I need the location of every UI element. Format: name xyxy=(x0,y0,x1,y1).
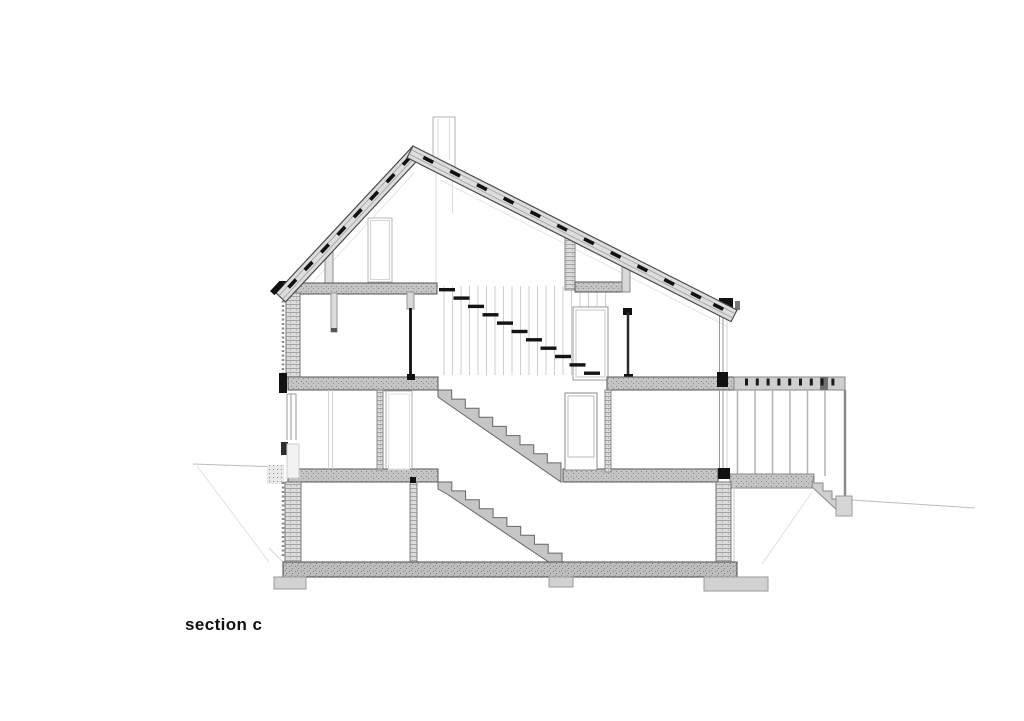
ground-floor-slab xyxy=(288,469,718,482)
first-floor-slab xyxy=(288,377,734,390)
attic-door xyxy=(573,307,608,380)
grade-line-right xyxy=(762,492,975,564)
wall-stub xyxy=(331,293,337,332)
interior-wall-ground-right xyxy=(565,390,611,472)
enclosure-wall-left xyxy=(565,235,575,290)
soil-hatch xyxy=(267,465,284,484)
terrace-beam-ticks xyxy=(745,379,834,386)
architectural-section-sheet: section c xyxy=(0,0,1024,721)
interior-wall-basement xyxy=(410,477,417,562)
footing-right xyxy=(704,577,768,591)
door-ground-floor xyxy=(565,393,597,470)
partition-elevation xyxy=(329,390,333,469)
interior-wall-attic xyxy=(407,292,415,380)
footing-left xyxy=(274,577,306,589)
footing-center xyxy=(549,577,573,587)
drawing-title: section c xyxy=(185,615,262,635)
roof-left-slope xyxy=(270,146,422,302)
gutter-right xyxy=(735,301,740,310)
glazing-right xyxy=(720,313,724,469)
stair-flight-upper xyxy=(438,390,561,482)
attic-floor-slab xyxy=(288,283,437,294)
attic-window xyxy=(368,218,392,282)
exterior-wall-left xyxy=(279,281,301,562)
stair-flight-lower xyxy=(438,482,562,571)
spandrel-panel xyxy=(287,444,299,478)
terrace-slab xyxy=(730,474,814,488)
terrace-posts xyxy=(738,390,826,476)
foundation-slab xyxy=(283,562,737,577)
enclosure-slab xyxy=(575,282,622,292)
basement-wall-right xyxy=(716,482,731,562)
terrace xyxy=(730,377,852,516)
section-drawing xyxy=(0,0,1024,721)
grade-line-left xyxy=(193,464,284,563)
exterior-wall-right xyxy=(716,298,740,562)
door-first-floor xyxy=(383,391,412,469)
foundation xyxy=(274,562,768,591)
roof-right-slope xyxy=(407,146,737,322)
column-footing xyxy=(836,496,852,516)
